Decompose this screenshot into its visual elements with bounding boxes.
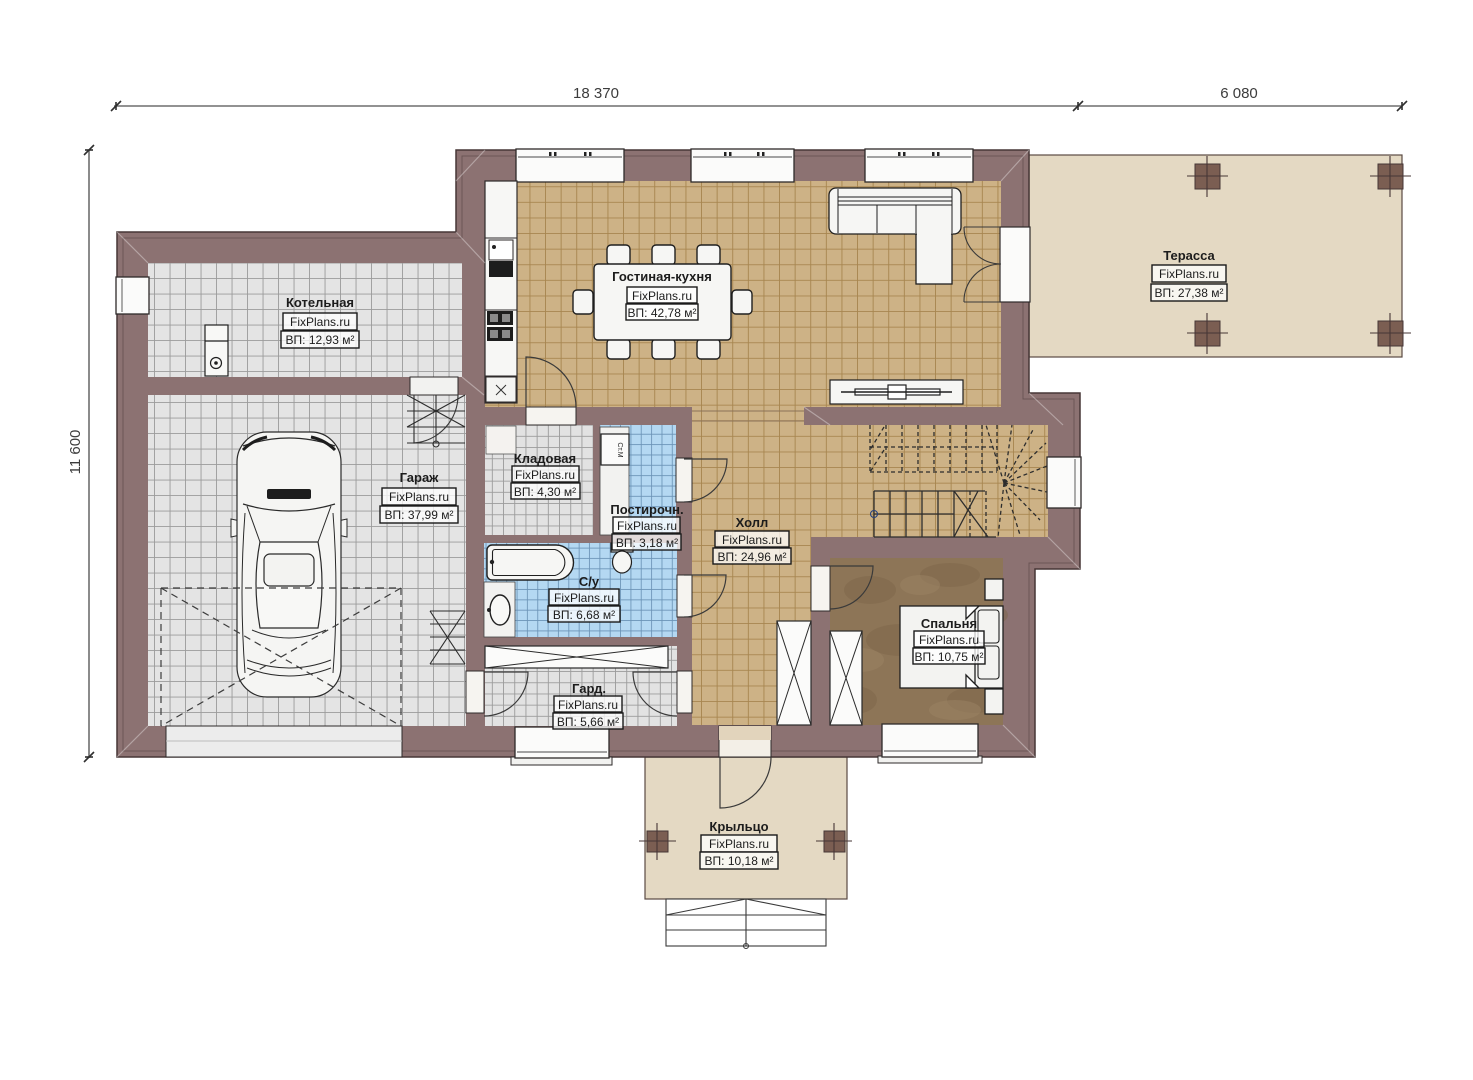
svg-text:Терасса: Терасса — [1163, 248, 1215, 263]
svg-text:ВП: 37,99 м²: ВП: 37,99 м² — [385, 508, 454, 522]
svg-text:FixPlans.ru: FixPlans.ru — [632, 289, 692, 303]
svg-text:Крыльцо: Крыльцо — [709, 819, 768, 834]
svg-text:Постирочн.: Постирочн. — [610, 502, 683, 517]
svg-text:ВП: 4,30 м²: ВП: 4,30 м² — [514, 485, 576, 499]
svg-text:ВП: 24,96 м²: ВП: 24,96 м² — [718, 550, 787, 564]
svg-text:Котельная: Котельная — [286, 295, 354, 310]
svg-text:С/у: С/у — [579, 574, 600, 589]
svg-text:ВП: 5,66 м²: ВП: 5,66 м² — [557, 715, 619, 729]
svg-text:ВП: 3,18 м²: ВП: 3,18 м² — [616, 536, 678, 550]
svg-text:FixPlans.ru: FixPlans.ru — [389, 490, 449, 504]
svg-text:ВП: 42,78 м²: ВП: 42,78 м² — [628, 306, 697, 320]
svg-text:Спальня: Спальня — [921, 616, 977, 631]
svg-text:18 370: 18 370 — [573, 85, 619, 102]
svg-text:FixPlans.ru: FixPlans.ru — [617, 519, 677, 533]
svg-text:Гараж: Гараж — [400, 470, 440, 485]
svg-text:Ст.М: Ст.М — [616, 442, 623, 457]
svg-text:Гард.: Гард. — [572, 681, 606, 696]
svg-text:Гостиная-кухня: Гостиная-кухня — [612, 269, 712, 284]
svg-text:FixPlans.ru: FixPlans.ru — [554, 591, 614, 605]
svg-text:11 600: 11 600 — [67, 430, 84, 475]
svg-text:FixPlans.ru: FixPlans.ru — [558, 698, 618, 712]
svg-text:ВП: 10,75 м²: ВП: 10,75 м² — [915, 650, 984, 664]
svg-text:FixPlans.ru: FixPlans.ru — [515, 468, 575, 482]
svg-text:FixPlans.ru: FixPlans.ru — [1159, 267, 1219, 281]
svg-text:ВП: 12,93 м²: ВП: 12,93 м² — [286, 333, 355, 347]
svg-text:FixPlans.ru: FixPlans.ru — [290, 315, 350, 329]
svg-text:FixPlans.ru: FixPlans.ru — [919, 633, 979, 647]
svg-text:FixPlans.ru: FixPlans.ru — [722, 533, 782, 547]
svg-text:Холл: Холл — [736, 515, 769, 530]
svg-text:ВП: 10,18 м²: ВП: 10,18 м² — [705, 854, 774, 868]
svg-text:Кладовая: Кладовая — [514, 451, 576, 466]
svg-text:6 080: 6 080 — [1220, 85, 1258, 102]
svg-text:ВП: 27,38 м²: ВП: 27,38 м² — [1155, 286, 1224, 300]
svg-text:ВП: 6,68 м²: ВП: 6,68 м² — [553, 608, 615, 622]
svg-text:FixPlans.ru: FixPlans.ru — [709, 837, 769, 851]
